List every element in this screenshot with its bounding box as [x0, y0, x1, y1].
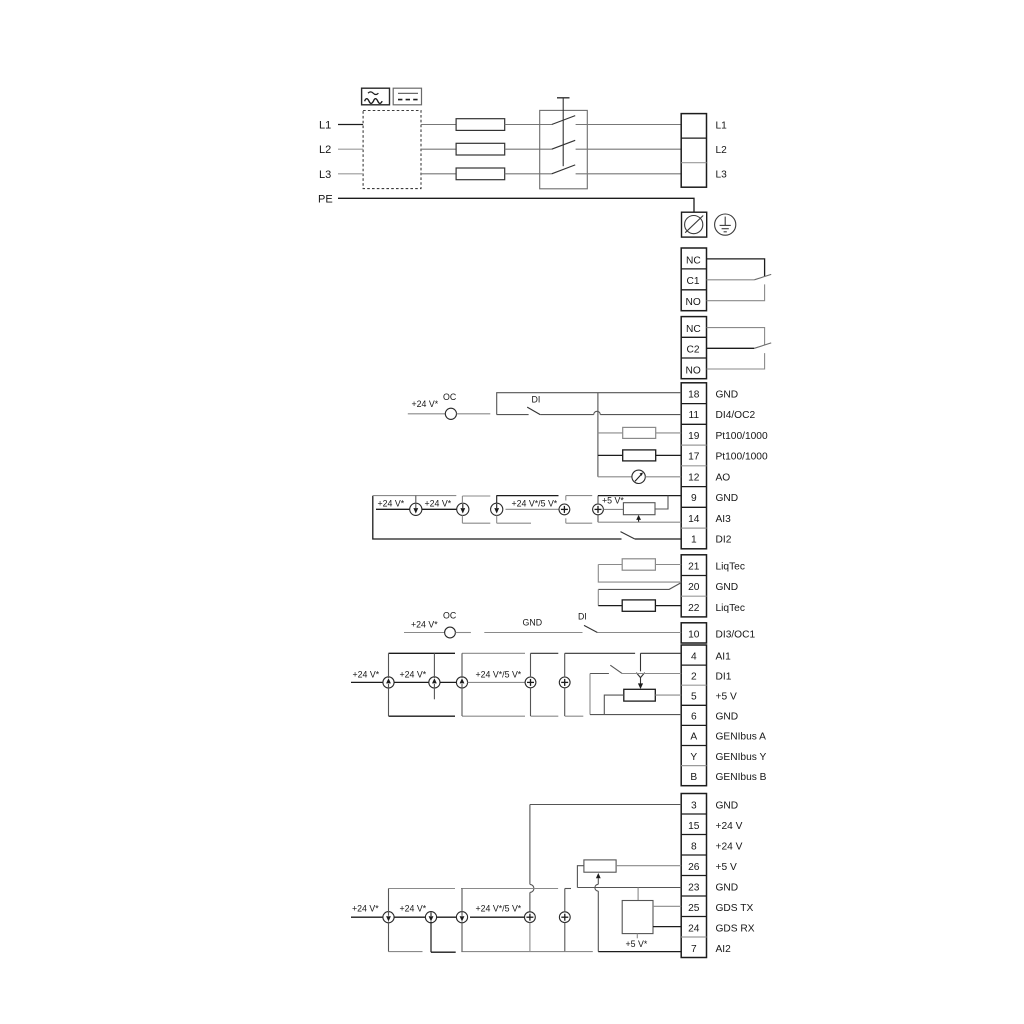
svg-text:6: 6: [691, 712, 697, 723]
svg-text:GND: GND: [716, 712, 739, 723]
svg-text:AI3: AI3: [716, 514, 732, 525]
svg-text:Pt100/1000: Pt100/1000: [716, 431, 768, 442]
svg-text:+24 V*: +24 V*: [400, 904, 427, 914]
svg-text:24: 24: [688, 923, 700, 934]
svg-text:L1: L1: [716, 121, 728, 132]
svg-text:3: 3: [691, 800, 697, 811]
svg-text:GDS RX: GDS RX: [716, 923, 755, 934]
svg-text:L2: L2: [319, 144, 331, 156]
svg-text:4: 4: [691, 651, 697, 662]
svg-text:+24 V*/5 V*: +24 V*/5 V*: [476, 670, 522, 680]
svg-text:GENIbus B: GENIbus B: [716, 772, 767, 783]
svg-text:DI4/OC2: DI4/OC2: [716, 410, 756, 421]
svg-text:L1: L1: [319, 120, 331, 132]
svg-text:+24 V*: +24 V*: [411, 620, 438, 630]
svg-text:NC: NC: [686, 324, 701, 335]
svg-text:+24 V*: +24 V*: [353, 670, 380, 680]
svg-text:L2: L2: [716, 145, 728, 156]
svg-text:+24 V*: +24 V*: [400, 670, 427, 680]
svg-text:25: 25: [688, 903, 700, 914]
svg-text:LiqTec: LiqTec: [716, 562, 745, 573]
svg-text:DI: DI: [532, 395, 541, 405]
svg-text:+24 V*/5 V*: +24 V*/5 V*: [512, 499, 558, 509]
svg-text:+5 V: +5 V: [716, 692, 737, 703]
svg-text:L3: L3: [716, 170, 728, 181]
svg-text:NO: NO: [686, 297, 701, 308]
svg-text:GND: GND: [716, 800, 739, 811]
svg-text:21: 21: [688, 562, 700, 573]
svg-text:17: 17: [688, 452, 700, 463]
svg-text:11: 11: [689, 410, 700, 421]
svg-text:+5 V: +5 V: [716, 862, 737, 873]
svg-text:5: 5: [691, 692, 697, 703]
svg-text:GND: GND: [716, 493, 739, 504]
svg-text:B: B: [690, 772, 697, 783]
svg-text:+24 V*/5 V*: +24 V*/5 V*: [476, 904, 522, 914]
svg-text:+24 V: +24 V: [716, 841, 743, 852]
svg-text:A: A: [690, 732, 697, 743]
svg-text:8: 8: [691, 841, 697, 852]
svg-text:DI3/OC1: DI3/OC1: [716, 629, 756, 640]
svg-text:L3: L3: [319, 169, 331, 181]
svg-text:GND: GND: [716, 390, 739, 401]
svg-text:23: 23: [688, 882, 700, 893]
svg-text:9: 9: [691, 493, 697, 504]
svg-text:+24 V: +24 V: [716, 821, 743, 832]
svg-text:+24 V*: +24 V*: [425, 499, 452, 509]
svg-text:LiqTec: LiqTec: [716, 603, 745, 614]
svg-text:GENIbus Y: GENIbus Y: [716, 752, 767, 763]
svg-text:20: 20: [688, 582, 700, 593]
svg-text:DI: DI: [578, 612, 587, 622]
svg-text:GND: GND: [716, 882, 739, 893]
svg-text:15: 15: [688, 821, 700, 832]
svg-text:1: 1: [691, 535, 697, 546]
svg-text:GENIbus A: GENIbus A: [716, 732, 767, 743]
svg-text:AI2: AI2: [716, 944, 732, 955]
svg-text:OC: OC: [443, 611, 457, 621]
svg-text:GND: GND: [523, 618, 543, 628]
svg-text:DI2: DI2: [716, 535, 732, 546]
svg-text:18: 18: [688, 390, 700, 401]
svg-text:GDS TX: GDS TX: [716, 903, 754, 914]
svg-text:+24 V*: +24 V*: [378, 499, 405, 509]
svg-text:+5 V*: +5 V*: [626, 939, 648, 949]
svg-text:10: 10: [688, 629, 700, 640]
svg-text:22: 22: [688, 603, 700, 614]
svg-text:C1: C1: [687, 276, 700, 287]
svg-text:7: 7: [691, 944, 697, 955]
svg-text:14: 14: [688, 514, 700, 525]
svg-text:GND: GND: [716, 582, 739, 593]
svg-text:OC: OC: [443, 392, 457, 402]
svg-text:Pt100/1000: Pt100/1000: [716, 452, 768, 463]
svg-text:2: 2: [691, 671, 697, 682]
svg-text:C2: C2: [687, 345, 700, 356]
svg-text:AI1: AI1: [716, 651, 732, 662]
svg-text:12: 12: [688, 473, 700, 484]
svg-text:+24 V*: +24 V*: [412, 399, 439, 409]
svg-text:NC: NC: [686, 255, 701, 266]
svg-text:AO: AO: [716, 473, 731, 484]
svg-text:+24 V*: +24 V*: [352, 904, 379, 914]
svg-text:26: 26: [688, 862, 700, 873]
svg-text:DI1: DI1: [716, 671, 732, 682]
svg-text:Y: Y: [690, 752, 697, 763]
svg-text:19: 19: [688, 431, 700, 442]
svg-text:PE: PE: [318, 194, 333, 206]
svg-text:NO: NO: [686, 365, 701, 376]
svg-text:+5 V*: +5 V*: [602, 496, 624, 506]
